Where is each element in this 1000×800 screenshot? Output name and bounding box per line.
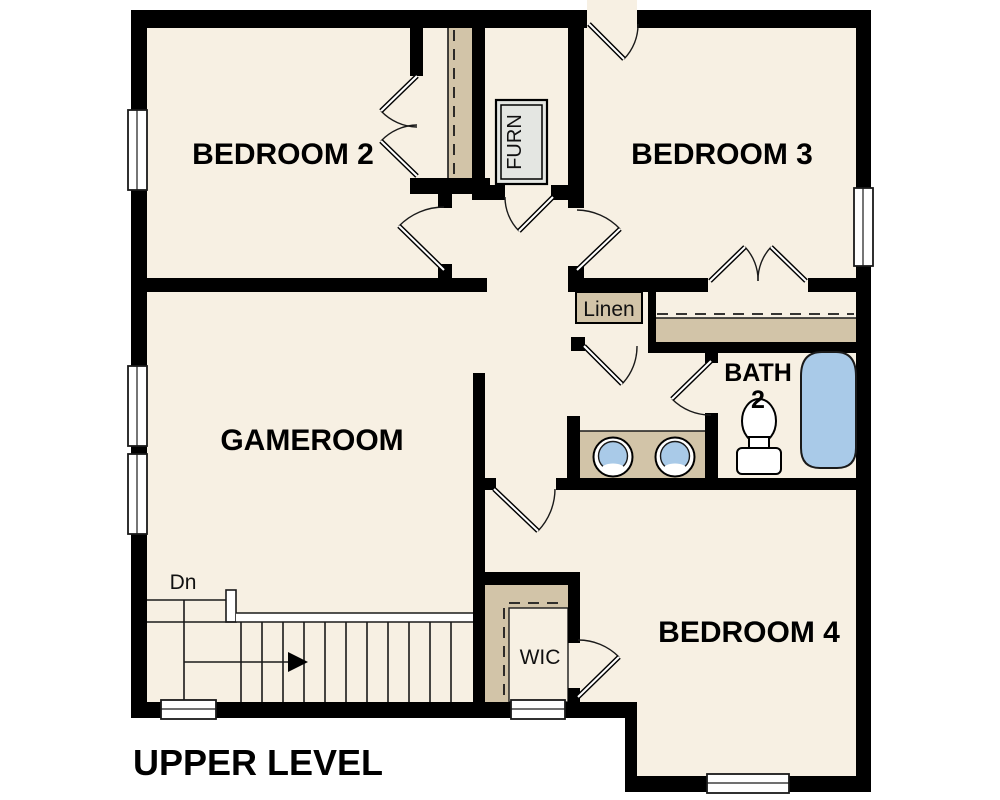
bedroom2-closet-shelf <box>448 28 472 180</box>
page-title: UPPER LEVEL <box>133 742 383 783</box>
window-bedroom4-bottom <box>707 774 789 793</box>
sink-right <box>656 438 695 477</box>
stair-rail-band <box>236 613 473 622</box>
bathtub <box>801 352 856 468</box>
label-bath-number: 2 <box>751 386 765 414</box>
label-bedroom4: BEDROOM 4 <box>658 616 840 649</box>
label-furnace: FURN <box>504 114 526 170</box>
stair-nosing <box>226 590 236 622</box>
wic-shelving <box>485 585 568 702</box>
label-bedroom2: BEDROOM 2 <box>192 138 374 171</box>
window-gameroom-left-lower <box>128 454 147 534</box>
label-wic: WIC <box>520 646 561 669</box>
floorplan-page: BEDROOM 2 BEDROOM 3 GAMEROOM BEDROOM 4 B… <box>0 0 1000 800</box>
label-bedroom3: BEDROOM 3 <box>631 138 813 171</box>
window-stairs-bottom <box>161 700 216 719</box>
floorplan-drawing: BEDROOM 2 BEDROOM 3 GAMEROOM BEDROOM 4 B… <box>0 0 1000 800</box>
sink-left <box>594 438 633 477</box>
label-gameroom: GAMEROOM <box>220 424 403 457</box>
window-bedroom2-left <box>128 110 147 190</box>
bedroom3-closet-shelf <box>655 314 856 342</box>
window-bedroom3-right <box>854 188 873 266</box>
label-linen: Linen <box>583 298 634 321</box>
label-stairs-down: Dn <box>170 571 197 594</box>
label-bath: BATH <box>724 359 792 387</box>
window-wic-bottom <box>511 700 565 719</box>
window-gameroom-left-upper <box>128 366 147 446</box>
